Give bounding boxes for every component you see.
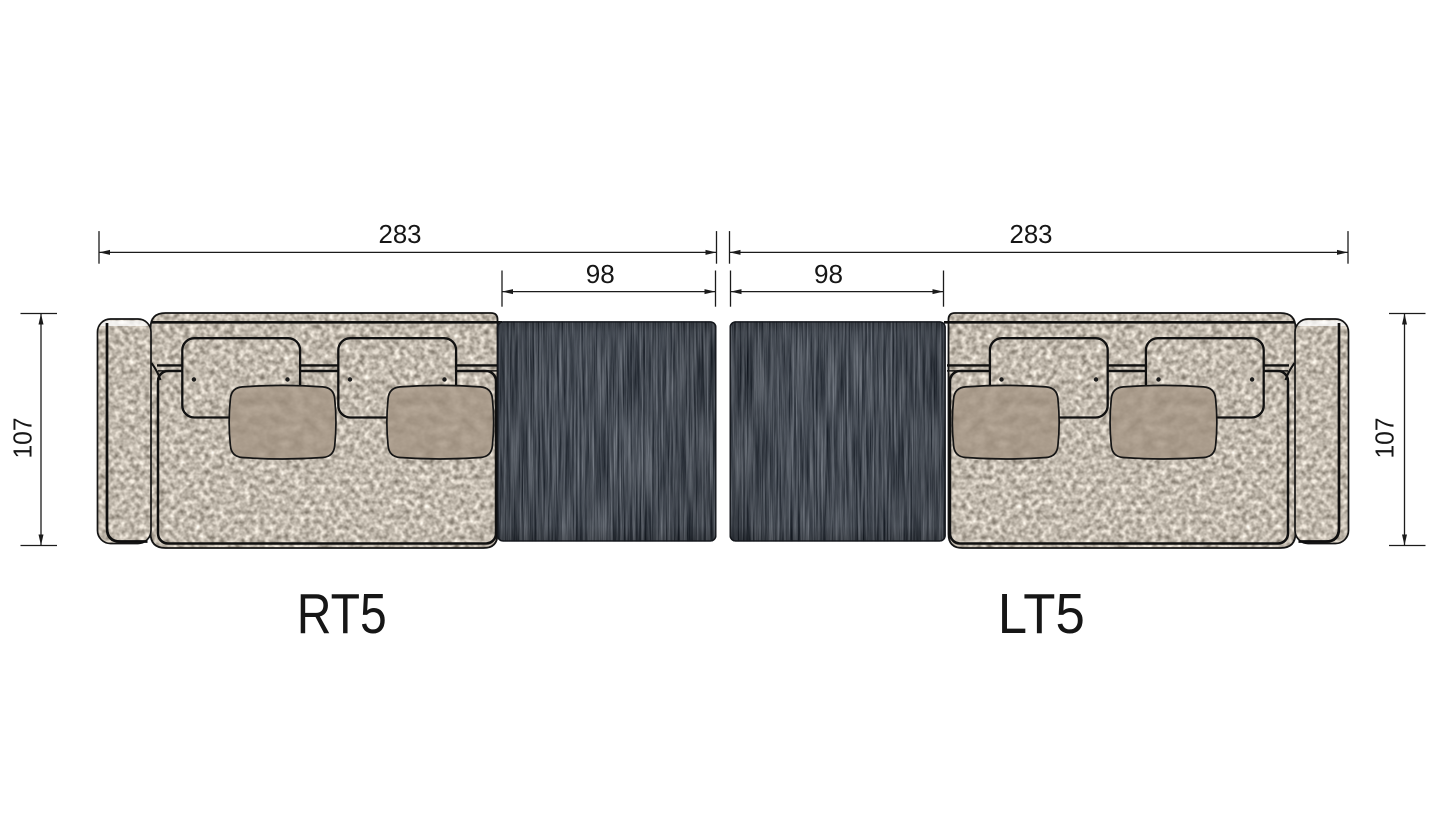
svg-text:107: 107 (8, 418, 38, 459)
svg-text:RT5: RT5 (297, 582, 387, 646)
svg-text:283: 283 (379, 219, 422, 249)
svg-text:LT5: LT5 (998, 582, 1085, 646)
svg-text:107: 107 (1370, 418, 1400, 459)
svg-text:98: 98 (586, 259, 615, 289)
svg-text:98: 98 (814, 259, 843, 289)
svg-text:283: 283 (1010, 219, 1053, 249)
